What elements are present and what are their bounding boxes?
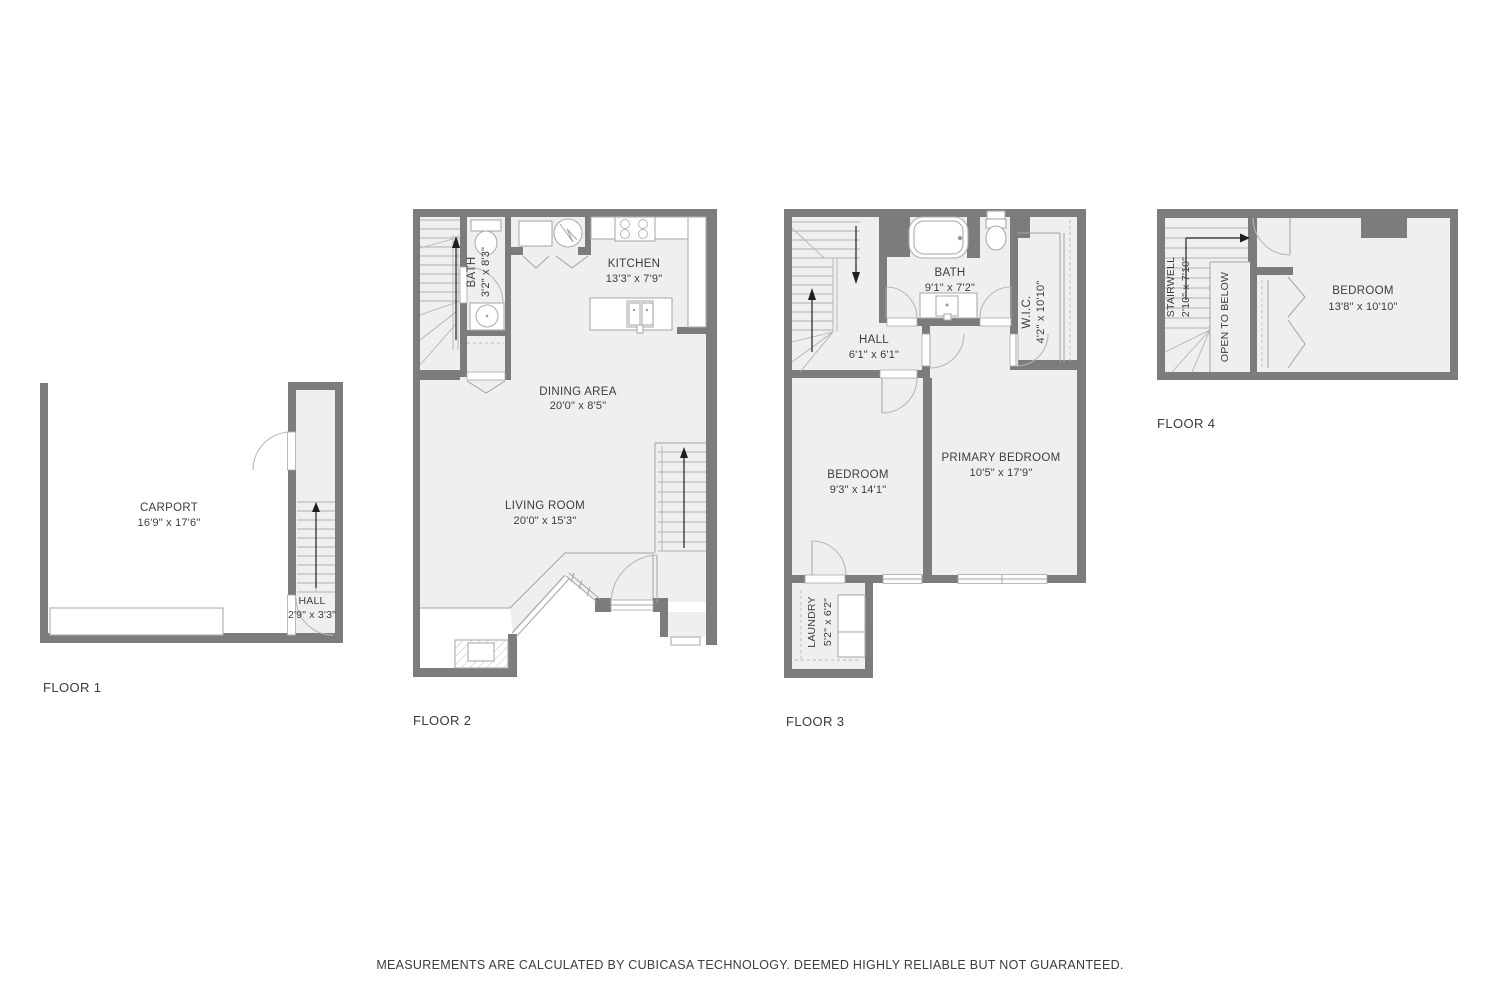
cabinet-icon — [519, 221, 552, 246]
room-label-carport: CARPORT — [140, 502, 198, 514]
room-label-wic: W.I.C. — [1021, 295, 1033, 328]
room-label-hall-f3: HALL — [859, 334, 889, 346]
floor-1-caption: FLOOR 1 — [43, 680, 101, 695]
kitchen-right-counter — [688, 217, 706, 327]
room-label-living: LIVING ROOM — [505, 500, 585, 512]
room-label-bedroom-f4: BEDROOM — [1332, 285, 1394, 297]
floor-4-floors — [1165, 217, 1450, 372]
washer-icon — [838, 595, 865, 632]
room-dims-hall-f3: 6'1" x 6'1" — [849, 349, 899, 361]
fireplace — [455, 640, 508, 668]
room-label-laundry: LAUNDRY — [806, 596, 818, 647]
room-label-kitchen: KITCHEN — [608, 258, 661, 270]
stove-icon — [615, 217, 655, 241]
room-label-primary-bedroom: PRIMARY BEDROOM — [941, 452, 1060, 464]
room-dims-primary-bedroom: 10'5" x 17'9" — [970, 467, 1033, 479]
room-dims-bath-f3: 9'1" x 7'2" — [925, 282, 975, 294]
floor-3-plan: HALL 6'1" x 6'1" BATH 9'1" x 7'2" W.I.C.… — [781, 206, 1089, 681]
room-dims-stairwell: 2'10" x 7'10" — [1180, 257, 1192, 317]
floor-3-windows — [883, 575, 1047, 584]
floor-4-caption: FLOOR 4 — [1157, 416, 1215, 431]
room-label-bath-f3: BATH — [934, 267, 965, 279]
floor-2-plan: BATH 3'2" x 8'3" KITCHEN 13'3" x 7'9" DI… — [410, 206, 720, 680]
room-dims-laundry: 5'2" x 6'2" — [822, 598, 834, 646]
room-label-hall-f1: HALL — [298, 595, 325, 607]
room-label-open-to-below: OPEN TO BELOW — [1219, 272, 1231, 362]
floor-4-plan: STAIRWELL 2'10" x 7'10" OPEN TO BELOW BE… — [1154, 206, 1461, 383]
floor-1-plan: CARPORT 16'9" x 17'6" HALL 2'9" x 3'3" — [40, 380, 346, 646]
water-heater-icon — [554, 219, 582, 247]
chimney — [1361, 209, 1407, 238]
carport-hall-door-leaf — [288, 432, 296, 470]
toilet-tank-icon — [471, 220, 501, 231]
room-dims-dining: 20'0" x 8'5" — [550, 400, 607, 412]
carport-curb — [50, 608, 223, 635]
room-label-bedroom-f3: BEDROOM — [827, 469, 889, 481]
room-dims-bath-f2: 3'2" x 8'3" — [480, 247, 492, 297]
room-dims-hall-f1: 2'9" x 3'3" — [288, 609, 336, 621]
floorplan-page: { "disclaimer": "MEASUREMENTS ARE CALCUL… — [0, 0, 1500, 1000]
entry-step — [671, 637, 700, 645]
dryer-icon — [838, 632, 865, 657]
room-dims-bedroom-f4: 13'8" x 10'10" — [1328, 301, 1397, 313]
room-dims-carport: 16'9" x 17'6" — [138, 517, 201, 529]
room-label-bath-f2: BATH — [466, 256, 478, 287]
measurement-disclaimer: MEASUREMENTS ARE CALCULATED BY CUBICASA … — [0, 958, 1500, 972]
floor-3-caption: FLOOR 3 — [786, 714, 844, 729]
room-dims-wic: 4'2" x 10'10" — [1035, 281, 1047, 344]
room-label-stairwell: STAIRWELL — [1165, 257, 1177, 317]
room-dims-bedroom-f3: 9'3" x 14'1" — [830, 484, 887, 496]
carport-hall-door-arc — [253, 432, 291, 470]
bath-shelf-icon — [987, 211, 1005, 219]
room-dims-kitchen: 13'3" x 7'9" — [606, 273, 663, 285]
room-label-dining: DINING AREA — [539, 386, 616, 398]
room-dims-living: 20'0" x 15'3" — [514, 515, 577, 527]
toilet-icon-f3 — [986, 226, 1006, 250]
floor-2-caption: FLOOR 2 — [413, 713, 471, 728]
